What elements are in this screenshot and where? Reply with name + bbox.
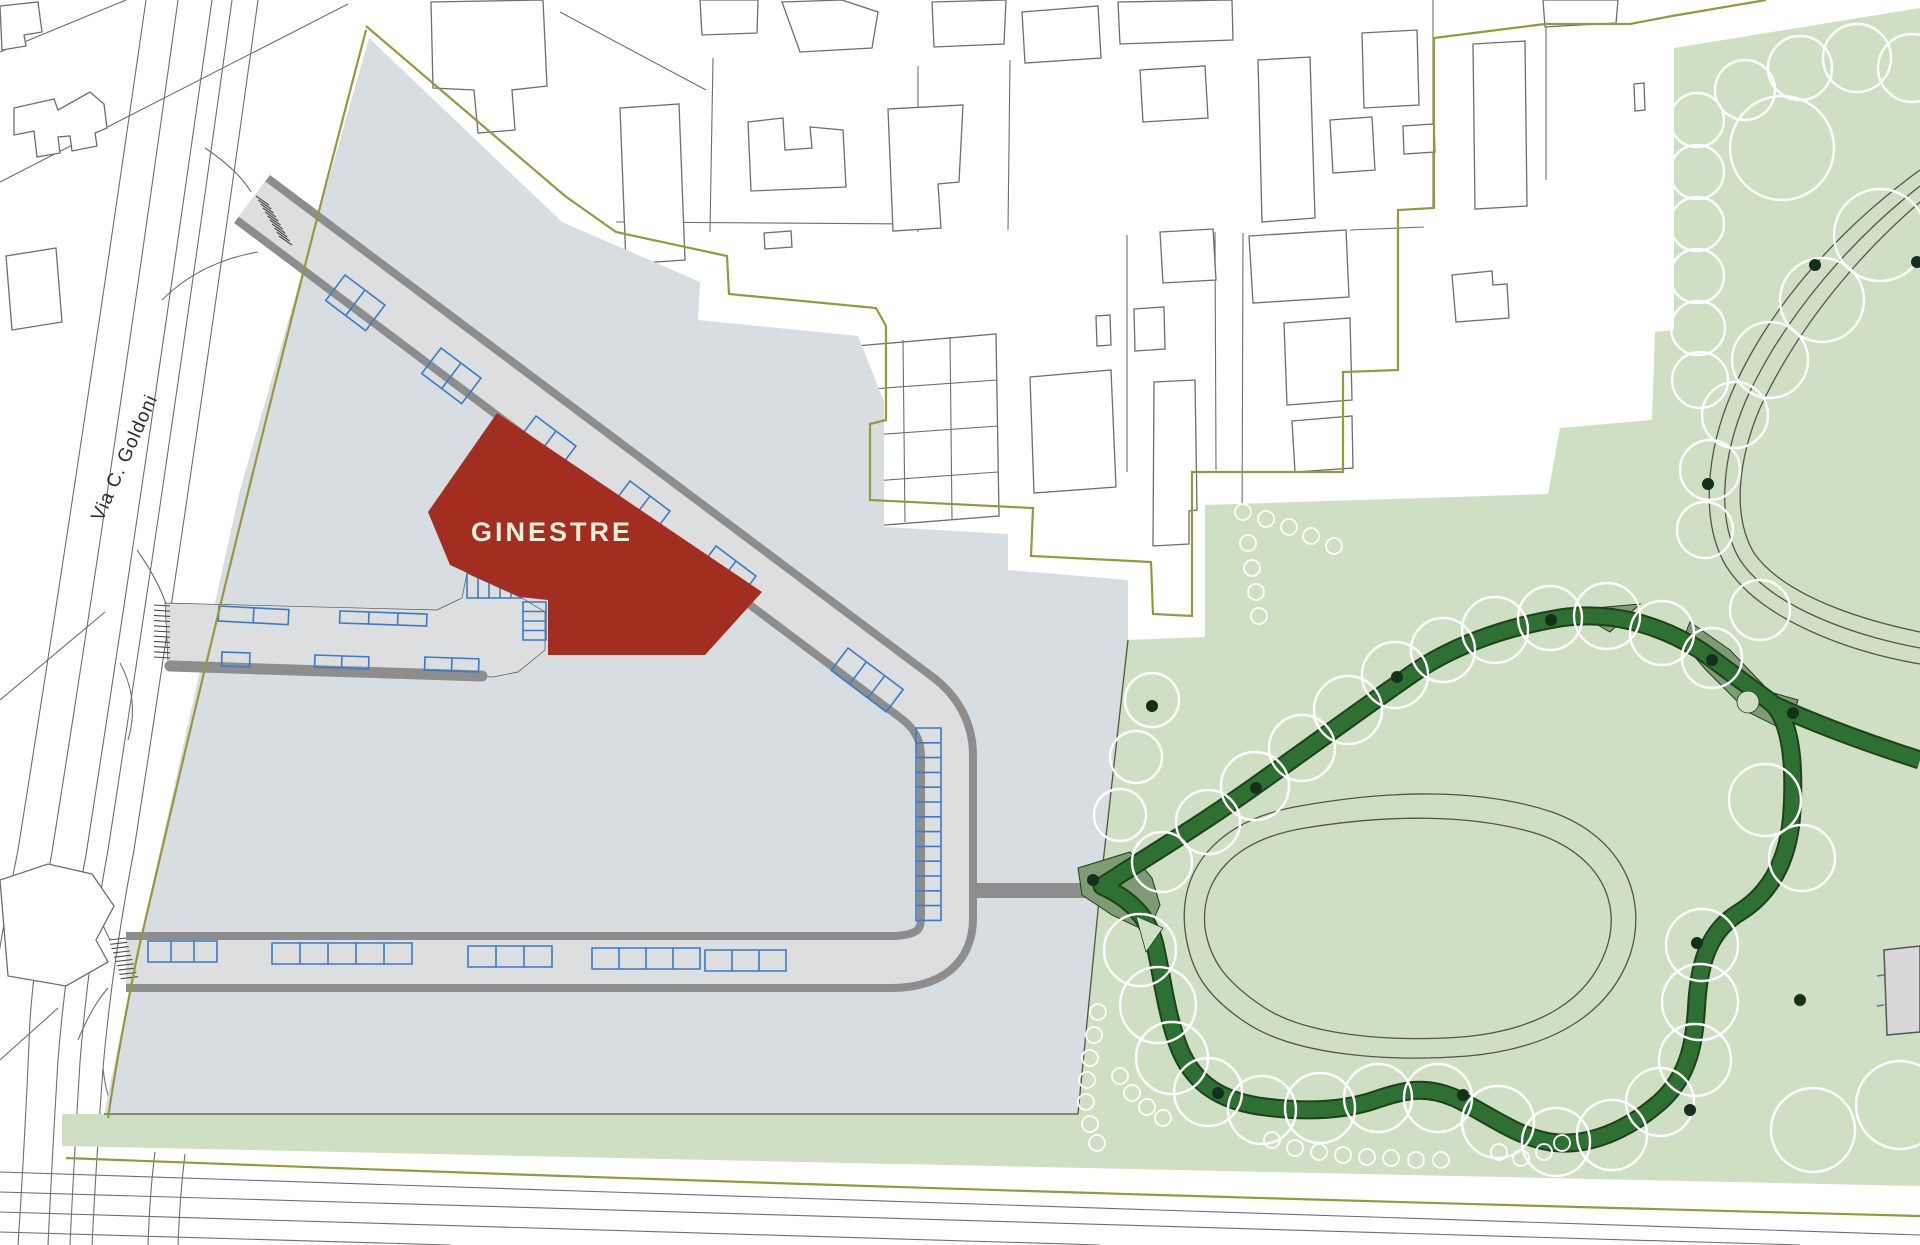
- tree-trunk-dot: [1212, 1087, 1224, 1099]
- tree-trunk-dot: [1457, 1089, 1469, 1101]
- building-outlines-topcenter: [431, 0, 1375, 264]
- tree-trunk-dot: [1087, 874, 1099, 886]
- map-canvas: GINESTRE Via C. Goldoni: [0, 0, 1920, 1245]
- building-outlines-topright: [1362, 0, 1645, 322]
- tree-trunk-dot: [1545, 614, 1557, 626]
- tree-trunk-dot: [1702, 478, 1714, 490]
- tree-trunk-dot: [1794, 994, 1806, 1006]
- tree-trunk-dot: [1146, 700, 1158, 712]
- park-service-building: [1884, 946, 1920, 1035]
- tree-trunk-dot: [1787, 707, 1799, 719]
- tree-trunk-dot: [1684, 1104, 1696, 1116]
- tree-trunk-dot: [1691, 937, 1703, 949]
- tree-trunk-dot: [1250, 782, 1262, 794]
- tree-trunk-dot: [1706, 654, 1718, 666]
- building-label: GINESTRE: [471, 517, 633, 547]
- site-plan-map: GINESTRE Via C. Goldoni: [0, 0, 1920, 1245]
- tree-trunk-dot: [1809, 259, 1821, 271]
- street-label: Via C. Goldoni: [88, 391, 163, 524]
- tree-trunk-dot: [1391, 671, 1403, 683]
- junction-island-east: [1737, 691, 1759, 713]
